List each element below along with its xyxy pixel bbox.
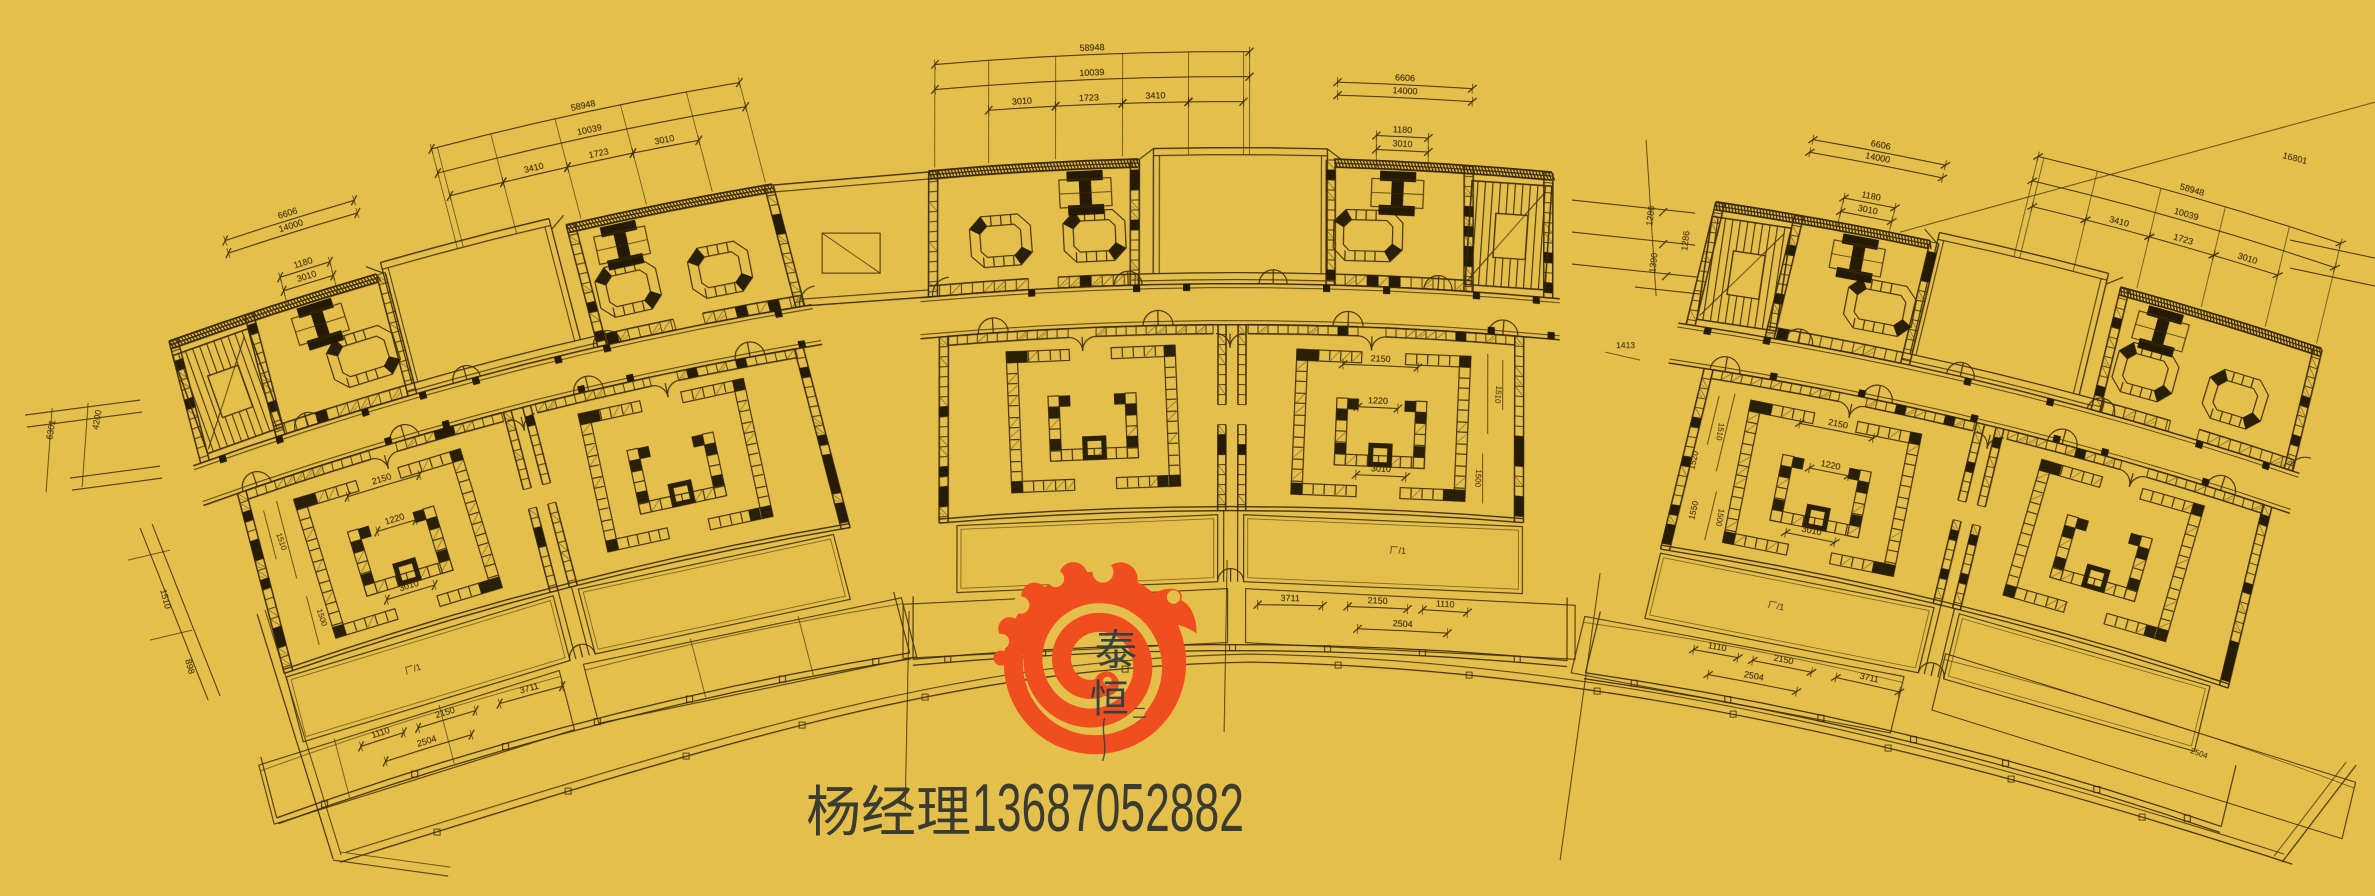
svg-text:泰: 泰 — [1095, 628, 1138, 675]
svg-text:恒: 恒 — [1090, 678, 1129, 721]
svg-text:杨经理: 杨经理 — [806, 781, 971, 843]
svg-text:二: 二 — [1133, 706, 1147, 722]
svg-text:13687052882: 13687052882 — [972, 770, 1244, 846]
